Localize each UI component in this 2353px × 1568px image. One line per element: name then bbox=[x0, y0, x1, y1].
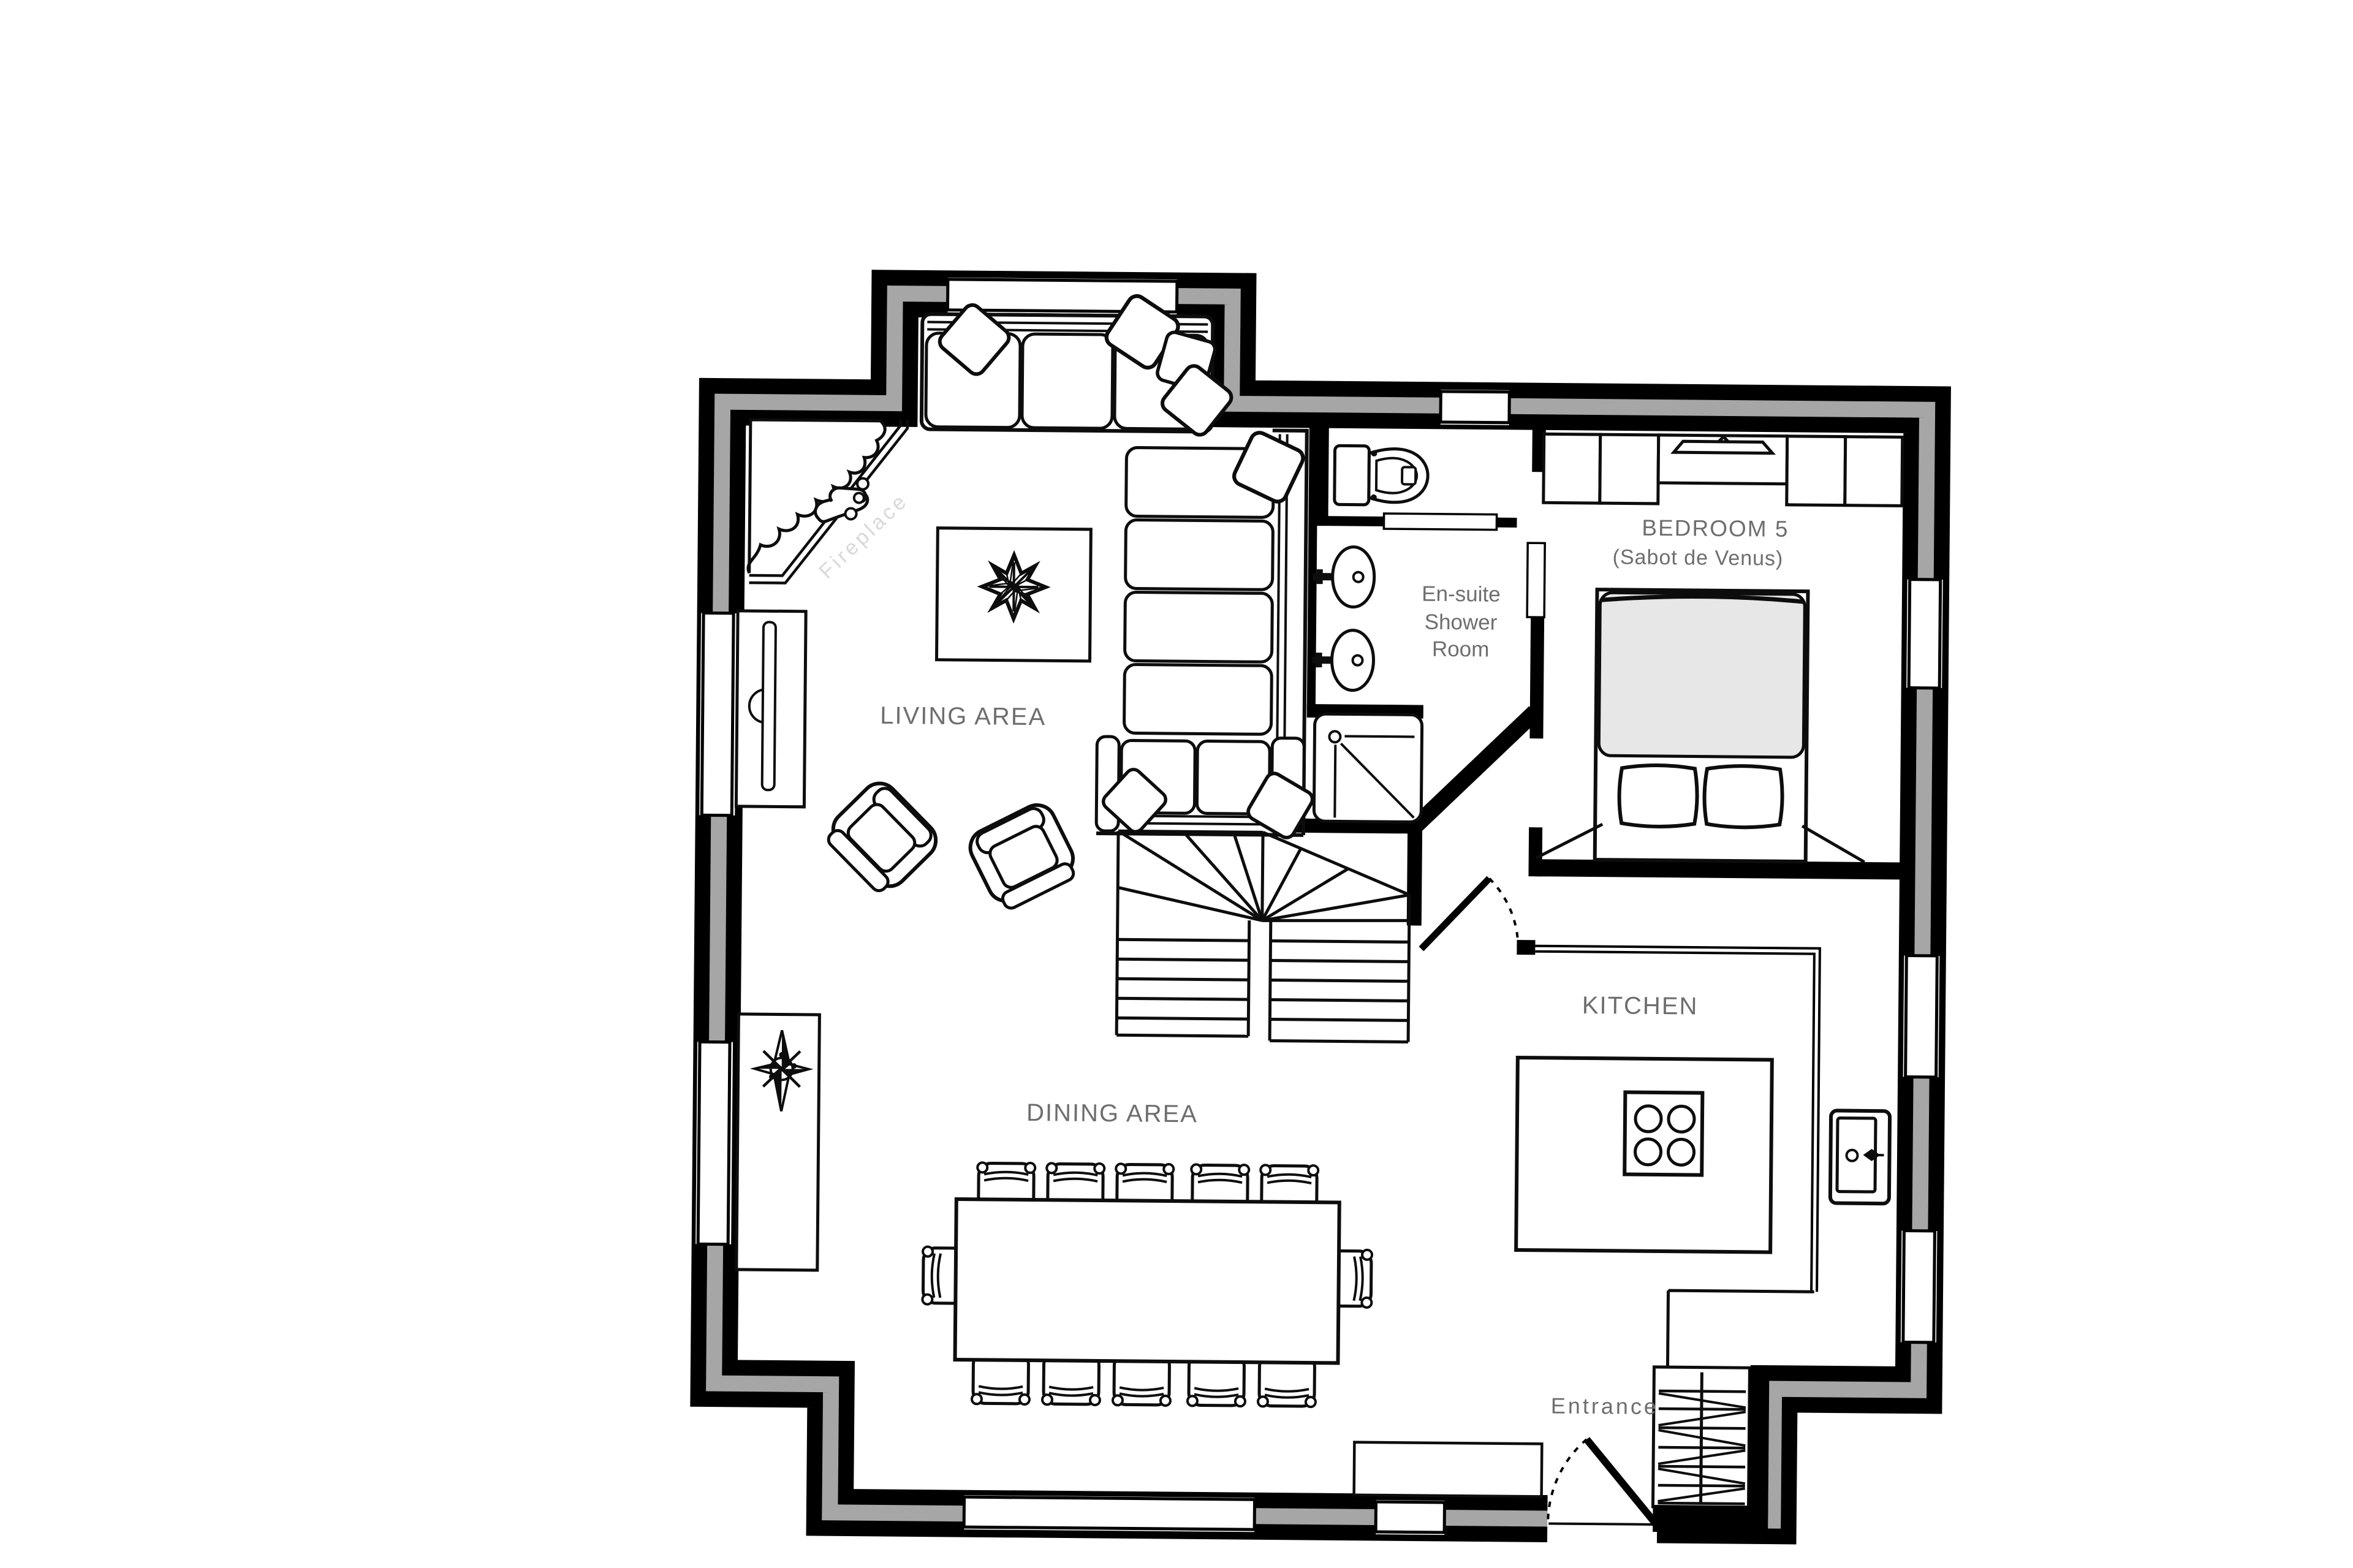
svg-text:LIVING AREA: LIVING AREA bbox=[880, 702, 1046, 730]
svg-text:Entrance: Entrance bbox=[1551, 1393, 1659, 1419]
svg-text:En-suite: En-suite bbox=[1422, 582, 1501, 607]
svg-text:KITCHEN: KITCHEN bbox=[1582, 992, 1699, 1020]
svg-text:DINING AREA: DINING AREA bbox=[1026, 1099, 1198, 1127]
svg-text:Room: Room bbox=[1432, 637, 1490, 662]
svg-text:BEDROOM 5: BEDROOM 5 bbox=[1642, 515, 1789, 542]
svg-text:(Sabot de Venus): (Sabot de Venus) bbox=[1612, 545, 1783, 570]
svg-text:Shower: Shower bbox=[1425, 610, 1498, 635]
